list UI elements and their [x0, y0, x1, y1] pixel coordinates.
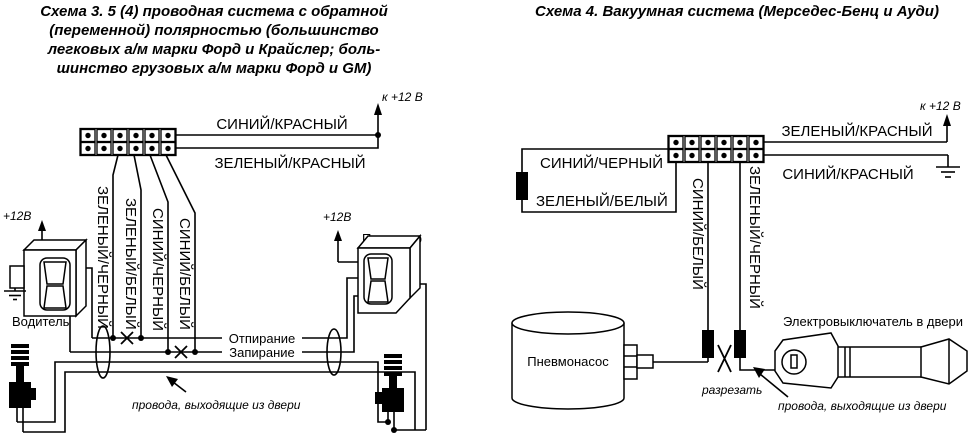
rocker-lower-pad: [368, 281, 388, 302]
rocker-upper-pad: [368, 258, 388, 279]
actuator-body: [382, 388, 404, 412]
pump-nozzle: [637, 355, 653, 368]
pump-top: [512, 312, 624, 334]
actuator-body: [9, 382, 31, 408]
junction-dot: [192, 349, 198, 355]
schema4-diagram: Схема 4. Вакуумная система (Мерседес-Бен…: [512, 3, 967, 413]
schema3-title-line-2: (переменной) полярностью (большинство: [49, 22, 378, 39]
wire-blue-black-label: СИНИЙ/ЧЕРНЫЙ: [149, 208, 167, 331]
cut-label: разрезать: [701, 383, 762, 397]
power-arrow-icon: [38, 220, 46, 231]
junction-dot: [165, 349, 171, 355]
power-arrow-icon: [374, 103, 382, 115]
alarm-connector-block: [668, 136, 764, 163]
passenger-output-wire: [420, 284, 426, 430]
to-12v-label: к +12 В: [382, 90, 423, 104]
rocker-lower-pad: [44, 286, 66, 308]
cut-mark-icon: [718, 345, 731, 372]
switch-side-face: [76, 240, 86, 316]
right-door-lock-actuator: [375, 354, 404, 430]
pump-bottom: [512, 398, 624, 409]
rocker-upper-pad: [44, 262, 66, 284]
unlock-wire: [302, 278, 358, 338]
door-wires-note-text: провода, выходящие из двери: [778, 399, 947, 413]
door-actuator-wiring: [17, 326, 426, 433]
switch-tail: [921, 339, 967, 384]
wire-blue-red-label: СИНИЙ/КРАСНЫЙ: [782, 165, 913, 183]
lock-label: Запирание: [229, 345, 295, 360]
power-arrow-icon: [334, 230, 342, 241]
power-and-ground-wires: к +12 В ЗЕЛЕНЫЙ/КРАСНЫЙ СИНИЙ/КРАСНЫЙ: [764, 99, 961, 183]
wire-blue-white-label: СИНИЙ/БЕЛЫЙ: [176, 218, 194, 330]
connector-drop-wires: ЗЕЛЕНЫЙ/ЧЕРНЫЙ ЗЕЛЕНЫЙ/БЕЛЫЙ СИНИЙ/ЧЕРНЫ…: [94, 155, 195, 352]
door-wires-note-text: провода, выходящие из двери: [132, 398, 301, 412]
switch-tab: [10, 266, 24, 288]
actuator-shaft: [16, 366, 24, 382]
wire-green-red: [176, 135, 378, 148]
junction-dot: [138, 335, 144, 341]
actuator-tab: [31, 388, 36, 400]
wire-green-black-label: ЗЕЛЕНЫЙ/ЧЕРНЫЙ: [746, 166, 764, 309]
schema3-diagram: Схема 3. 5 (4) проводная система с обрат…: [3, 3, 426, 433]
power-feed-wires: СИНИЙ/КРАСНЫЙ ЗЕЛЕНЫЙ/КРАСНЫЙ к +12 В: [176, 90, 423, 172]
ground-icon: [936, 155, 960, 177]
power-arrow-icon: [943, 114, 951, 126]
unlock-label: Отпирание: [229, 331, 296, 346]
wire-green-white-label: ЗЕЛЕНЫЙ/БЕЛЫЙ: [122, 198, 140, 330]
actuator-wire-1: [17, 362, 388, 422]
switch-side-face: [410, 236, 420, 298]
note-arrow-stem: [173, 382, 186, 392]
left-door-lock-actuator: [9, 344, 36, 432]
to-12v-label: к +12 В: [920, 99, 961, 113]
wire-blue-red-label: СИНИЙ/КРАСНЫЙ: [216, 115, 347, 133]
inline-component: [516, 172, 528, 200]
wire-blue-black-label: СИНИЙ/ЧЕРНЫЙ: [540, 154, 663, 172]
schema3-title-line-3: легковых а/м марки Форд и Крайслер; боль…: [47, 41, 380, 58]
pneumatic-pump: Пневмонасос: [512, 312, 708, 409]
passenger-12v-label: +12В: [323, 210, 351, 224]
driver-unlock-contact-wire: [86, 268, 92, 338]
wire-green-black-label: ЗЕЛЕНЫЙ/ЧЕРНЫЙ: [94, 186, 112, 329]
wire-green-black: [113, 155, 118, 338]
key-slot-icon: [791, 355, 797, 368]
schema4-title: Схема 4. Вакуумная система (Мерседес-Бен…: [535, 3, 939, 20]
driver-door-switch: +12В Водитель: [3, 209, 92, 352]
actuator-tab: [375, 392, 382, 404]
scanned-wiring-diagram-page: Схема 3. 5 (4) проводная система с обрат…: [0, 0, 980, 434]
junction-dot: [110, 335, 116, 341]
lock-wire: [302, 296, 358, 352]
ground-icon: [4, 288, 26, 300]
passenger-door-switch: +12В Пассажир: [323, 210, 426, 430]
actuator-shaft: [389, 376, 397, 388]
driver-12v-label: +12В: [3, 209, 31, 223]
schema3-title: Схема 3. 5 (4) проводная система с обрат…: [40, 3, 388, 77]
driver-label: Водитель: [12, 314, 70, 329]
wire-blue-white-label: СИНИЙ/БЕЛЫЙ: [689, 178, 707, 290]
schema3-title-line-1: Схема 3. 5 (4) проводная система с обрат…: [40, 3, 388, 20]
door-electric-switch: Электровыключатель в двери: [775, 314, 967, 388]
inline-component: [734, 330, 746, 358]
schema3-title-line-4: шинство грузовых а/м марки Форд и GM): [57, 60, 372, 77]
door-switch-label: Электровыключатель в двери: [783, 314, 963, 329]
wire-green-red-label: ЗЕЛЕНЫЙ/КРАСНЫЙ: [214, 154, 365, 172]
pump-label: Пневмонасос: [527, 354, 609, 369]
wire-green-red-label: ЗЕЛЕНЫЙ/КРАСНЫЙ: [781, 122, 932, 140]
alarm-connector-block: [80, 129, 176, 156]
left-loop-wires: СИНИЙ/ЧЕРНЫЙ ЗЕЛЕНЫЙ/БЕЛЫЙ: [516, 149, 676, 212]
pump-flange: [624, 345, 637, 379]
inline-component: [702, 330, 714, 358]
door-wires-note: провода, выходящие из двери: [132, 376, 301, 412]
wiring-diagrams-canvas: Схема 3. 5 (4) проводная система с обрат…: [0, 0, 980, 434]
wire-green-white-label: ЗЕЛЕНЫЙ/БЕЛЫЙ: [536, 192, 668, 210]
